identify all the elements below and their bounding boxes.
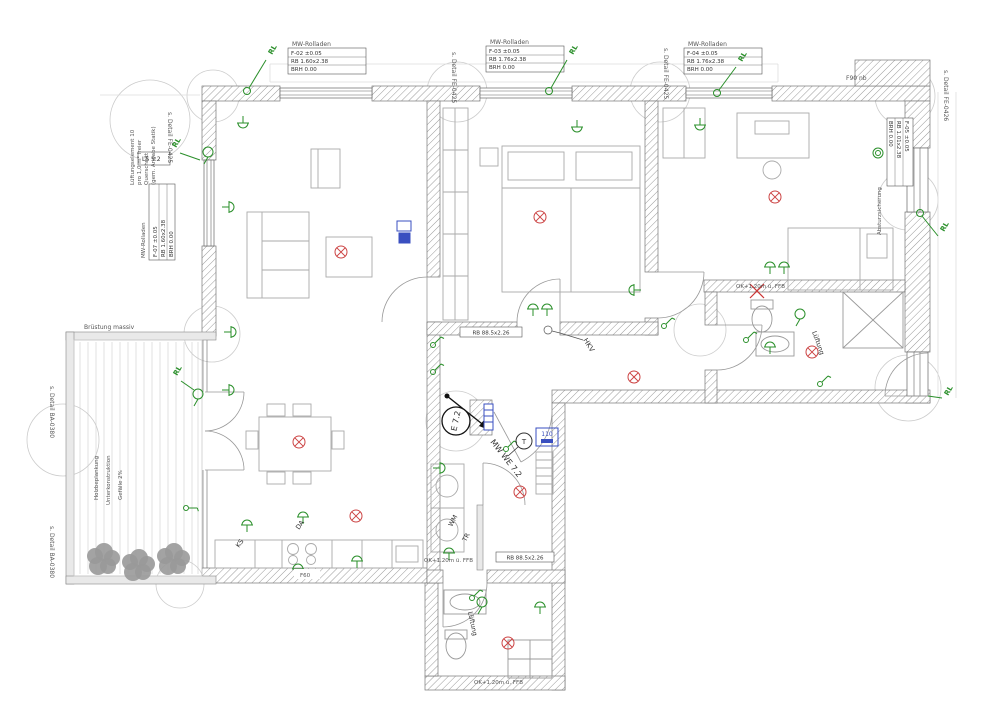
window — [280, 88, 372, 98]
shelf — [311, 149, 340, 188]
svg-text:Lüftungselement 10: Lüftungselement 10 — [130, 129, 136, 185]
rl-label: RL — [171, 136, 200, 160]
socket-icon — [241, 520, 253, 532]
window-tag-left: MW-Rolladen F-07 ±0.05 RB 1.60x2.38 BRH … — [141, 184, 175, 260]
svg-text:RL: RL — [939, 220, 951, 233]
monitor — [755, 121, 789, 134]
svg-text:Gefälle 2%: Gefälle 2% — [118, 470, 124, 500]
ceiling-light-icon — [293, 436, 305, 448]
detail-ref: s. Detail FE-0425 — [166, 112, 173, 163]
wall-segment — [202, 246, 216, 336]
balcony-note: Gefälle 2% — [118, 470, 124, 500]
wall-segment — [855, 60, 930, 86]
svg-text:pro 1,0 m² freier: pro 1,0 m² freier — [136, 139, 143, 185]
window-tag-row: RB 1.60x2.38 — [161, 219, 167, 257]
svg-text:RL: RL — [267, 43, 279, 56]
socket-icon — [224, 326, 236, 338]
wall-segment — [202, 101, 216, 160]
vent-icon — [795, 309, 805, 326]
svg-text:RL: RL — [172, 364, 184, 377]
socket-icon — [541, 304, 553, 316]
switch-icon — [744, 332, 758, 343]
window — [480, 88, 572, 98]
pillow — [576, 152, 632, 180]
fixtures — [444, 292, 903, 678]
svg-text:Absturzsicherung: Absturzsicherung — [877, 187, 883, 235]
svg-text:s. Detail BA-0380: s. Detail BA-0380 — [48, 526, 55, 578]
dryer-label: TR — [460, 531, 472, 544]
wall-segment — [427, 322, 440, 583]
entrance-label: MW WE 7.2 — [488, 438, 523, 479]
window-tag-row: BRH 0.00 — [169, 231, 175, 257]
window-tag-row: BRH 0.00 — [687, 67, 713, 73]
vent-note: (gem. Angabe Statik) — [151, 126, 157, 185]
wall-segment — [705, 292, 717, 325]
glazing-note: Absturzsicherung — [877, 187, 883, 235]
detail-ref: s. Detail BA-0380 — [48, 386, 55, 438]
socket-icon — [534, 602, 546, 614]
parapet — [66, 332, 216, 340]
rl-label: RL — [928, 384, 955, 398]
detail-ref: s. Detail FE-0425 — [450, 52, 457, 103]
cooktop-burner — [288, 544, 299, 555]
door-tag: RB 88.5x2.26 — [506, 556, 544, 562]
svg-text:KS: KS — [234, 538, 245, 549]
socket-icon — [571, 120, 583, 132]
window-tag-row: RB 1.76x2.38 — [687, 59, 725, 65]
svg-text:RL: RL — [568, 43, 580, 56]
window-tag-title: MW-Rolladen — [688, 41, 727, 48]
tree — [157, 543, 190, 575]
fire-rating: F90 nb — [846, 75, 867, 82]
chair — [293, 472, 311, 484]
dining-table — [259, 417, 331, 471]
window — [204, 160, 214, 246]
wall-segment — [487, 570, 565, 583]
window — [907, 352, 928, 396]
window-tag-row: F-03 ±0.05 — [489, 49, 520, 55]
socket-icon — [694, 118, 706, 130]
chair — [332, 431, 344, 449]
vent-icon — [477, 597, 487, 614]
cooktop-burner — [306, 544, 317, 555]
desk — [737, 113, 809, 158]
nightstand — [480, 148, 498, 166]
wall-segment — [372, 86, 480, 101]
socket-icon — [222, 384, 234, 396]
svg-text:Unterkonstruktion: Unterkonstruktion — [106, 455, 112, 505]
wall-segment — [552, 390, 930, 403]
ceiling-light-icon — [534, 211, 546, 223]
window-tag-title: MW-Rolladen — [490, 39, 529, 46]
ceiling-light-icon — [335, 246, 347, 258]
door-swing — [658, 272, 704, 318]
balcony-note: Holzbeplankung — [94, 456, 100, 500]
kitchen-sink — [396, 546, 418, 562]
socket-icon — [351, 556, 363, 568]
switch-icon — [818, 376, 832, 387]
wall-segment — [560, 322, 658, 335]
door-swing — [717, 325, 762, 370]
svg-text:RL: RL — [943, 384, 955, 397]
toilet — [446, 633, 466, 659]
balcony-door-swing — [205, 392, 244, 431]
svg-text:Querschnitt: Querschnitt — [144, 152, 150, 185]
wall-segment — [645, 101, 658, 272]
hood-label: DA — [294, 518, 306, 531]
vent-label: Lüftung — [466, 611, 479, 637]
window-tag-row: RB 1.76x2.38 — [489, 57, 527, 63]
wall-segment — [202, 86, 280, 101]
window-tag-row: BRH 0.00 — [291, 67, 317, 73]
svg-text:s. Detail FE-0425: s. Detail FE-0425 — [450, 52, 457, 103]
chair — [267, 472, 285, 484]
svg-text:Lüftung: Lüftung — [466, 611, 479, 637]
ceiling-light-icon — [628, 371, 640, 383]
door-swing — [517, 279, 560, 322]
wall-segment — [427, 570, 443, 583]
door-swing — [382, 277, 427, 322]
svg-text:(gem. Angabe Statik): (gem. Angabe Statik) — [151, 126, 157, 185]
chair — [293, 404, 311, 416]
fridge-label: KS — [234, 538, 245, 549]
window-tag-title: MW-Rolladen — [141, 222, 147, 258]
vent-note: Lüftungselement 10 — [130, 129, 136, 185]
chair — [246, 431, 258, 449]
door-contact-blue — [484, 404, 493, 430]
desk-chair — [763, 161, 781, 179]
vent-note: Querschnitt — [144, 152, 150, 185]
socket-icon — [237, 116, 249, 128]
socket-icon — [764, 262, 776, 274]
rl-label: RL — [172, 364, 194, 390]
svg-text:s. Detail FE-0425: s. Detail FE-0425 — [662, 48, 669, 99]
wall-segment — [905, 212, 930, 352]
cooktop-burner — [289, 556, 298, 565]
double-socket-icon — [873, 148, 883, 158]
ceiling-light-icon — [350, 510, 362, 522]
wall-segment — [427, 101, 440, 277]
window-tag-row: BRH 0.00 — [887, 121, 893, 147]
window-tag-title: MW-Rolladen — [292, 41, 331, 48]
floor-plan-canvas: MW-Rolladen F-02 ±0.05 RB 1.60x2.38 BRH … — [0, 0, 1000, 703]
cooktop-burner — [307, 556, 316, 565]
switch-icon — [470, 590, 484, 601]
svg-text:TR: TR — [460, 531, 472, 544]
socket-icon — [527, 304, 539, 316]
svg-text:s. Detail FE-0426: s. Detail FE-0426 — [942, 70, 949, 121]
closet — [443, 108, 468, 320]
exterior-context — [100, 64, 956, 398]
pillow — [508, 152, 564, 180]
parapet — [66, 332, 74, 584]
height-box-bar — [541, 439, 553, 443]
parapet-label: Brüstung massiv — [84, 324, 135, 331]
socket-icon — [222, 201, 234, 213]
socket-icon — [629, 284, 641, 296]
ceiling-light-icon — [514, 486, 526, 498]
detail-ref: s. Detail BA-0380 — [48, 526, 55, 578]
window-tag-row: F-04 ±0.05 — [687, 51, 718, 57]
svg-text:s. Detail BA-0380: s. Detail BA-0380 — [48, 386, 55, 438]
window-tag-row: F-05 ±0.05 — [903, 121, 909, 152]
height-box-value: 110 — [541, 431, 553, 438]
thermostat-label: T — [521, 438, 527, 446]
sill-note: OK+1.20m ü. FFB — [736, 284, 785, 290]
hkv-label: HKV — [581, 337, 596, 354]
partition-wall — [477, 505, 483, 570]
fire-rating: F60 — [300, 573, 311, 579]
vent-note: pro 1,0 m² freier — [136, 139, 143, 185]
sill-note: OK+1.20m ü. FFB — [474, 680, 523, 686]
chair — [267, 404, 285, 416]
svg-text:s. Detail FE-0425: s. Detail FE-0425 — [166, 112, 173, 163]
radiator — [536, 452, 553, 494]
detail-ref: s. Detail FE-0426 — [942, 70, 949, 121]
switch-icon — [662, 318, 676, 329]
balcony-door-swing — [205, 431, 244, 470]
detail-ref: s. Detail FE-0425 — [662, 48, 669, 99]
switch-icon — [182, 501, 199, 518]
window-tag-right: F-05 ±0.05 RB 1.01x2.38 BRH 0.00 — [887, 118, 913, 186]
window-tag-row: RB 1.60x2.38 — [291, 59, 329, 65]
floorplan-sheet: MW-Rolladen F-02 ±0.05 RB 1.60x2.38 BRH … — [0, 0, 1000, 703]
sill-note: OK+1.20m ü. FFB — [424, 558, 473, 564]
coffee-table — [326, 237, 372, 277]
media-box-blue — [397, 221, 411, 243]
window-tag-row: F-02 ±0.05 — [291, 51, 322, 57]
svg-text:HKV: HKV — [581, 337, 596, 354]
window-tag-row: RB 1.01x2.38 — [895, 121, 901, 159]
wall-segment — [705, 370, 717, 403]
door-tag: RB 88.5x2.26 — [472, 331, 510, 337]
wall-segment — [425, 583, 438, 676]
balcony-note: Unterkonstruktion — [106, 455, 112, 505]
window-tag-row: F-07 ±0.05 — [153, 226, 159, 257]
svg-text:MW WE 7.2: MW WE 7.2 — [488, 438, 523, 479]
window-tag-row: BRH 0.00 — [489, 65, 515, 71]
balcony — [66, 332, 216, 584]
pillow — [867, 234, 887, 258]
ceiling-light-icon — [769, 191, 781, 203]
tree — [87, 543, 120, 575]
wall-segment — [772, 86, 930, 101]
svg-text:DA: DA — [294, 518, 306, 531]
svg-text:Holzbeplankung: Holzbeplankung — [94, 456, 100, 500]
window — [686, 88, 772, 98]
sofa — [247, 212, 309, 298]
